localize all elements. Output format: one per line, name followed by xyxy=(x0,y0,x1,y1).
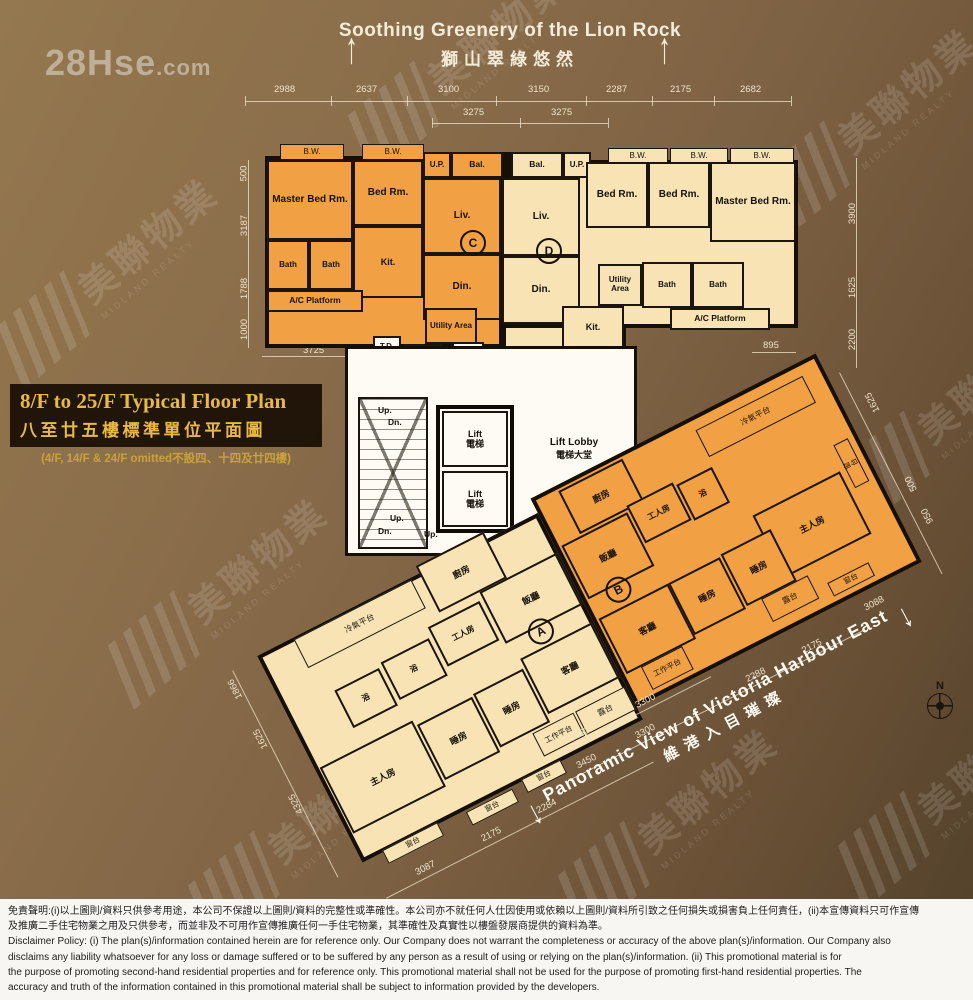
unit-c-bedroom: Bed Rm. xyxy=(353,160,423,226)
dim-tick xyxy=(608,118,609,128)
dim-tick xyxy=(520,118,521,128)
lift-lobby-label: Lift Lobby電梯大堂 xyxy=(536,437,612,461)
disclaimer-zh-line1: 免責聲明:(i)以上圖則/資料只供參考用途，本公司不保證以上圖則/資料的完整性或… xyxy=(8,904,965,919)
dim-tick xyxy=(652,96,653,106)
compass-north-label: N xyxy=(920,680,960,692)
unit-d-kitchen: Kit. xyxy=(562,306,624,348)
lift-1: Lift電梯 xyxy=(442,411,508,467)
unit-d-balcony: Bal. xyxy=(511,152,563,178)
dim-label: 500 xyxy=(903,474,920,493)
dim-label: 1625 xyxy=(847,277,858,298)
dim-tick xyxy=(586,96,587,106)
dim-label: 4325 xyxy=(286,792,305,816)
compass: N xyxy=(920,680,960,719)
dim-label: 2988 xyxy=(274,84,295,95)
dim-label: 2287 xyxy=(606,84,627,95)
dim-label: 3900 xyxy=(847,203,858,224)
unit-c-utility-platform: U.P. xyxy=(423,152,451,178)
dim-tick xyxy=(245,96,246,106)
disclaimer-en-line3: the purpose of promoting second-hand res… xyxy=(8,965,965,980)
unit-c-label: C xyxy=(460,230,486,256)
title-english: Soothing Greenery of the Lion Rock xyxy=(250,20,770,42)
dim-tick xyxy=(331,96,332,106)
unit-d-utility-area: Utility Area xyxy=(598,264,642,306)
dim-label: 2175 xyxy=(670,84,691,95)
unit-c-bathroom: Bath xyxy=(267,240,309,290)
disclaimer: 免責聲明:(i)以上圖則/資料只供參考用途，本公司不保證以上圖則/資料的完整性或… xyxy=(0,899,973,1000)
dim-label: 950 xyxy=(919,506,936,525)
omitted-floors-note: (4/F, 14/F & 24/F omitted不設四、十四及廿四樓) xyxy=(10,450,322,466)
compass-rose-icon xyxy=(927,693,953,719)
upper-wing-plan: B.W. B.W. U.P. Bal. Master Bed Rm. Bed R… xyxy=(240,140,820,380)
dim-tick xyxy=(496,96,497,106)
dim-label: 3275 xyxy=(463,107,484,118)
unit-d-bedroom: Bed Rm. xyxy=(648,162,710,228)
unit-d-bedroom: Bed Rm. xyxy=(586,162,648,228)
unit-d-bathroom: Bath xyxy=(642,262,692,308)
title-chinese: 獅山翠綠悠然 xyxy=(250,45,770,70)
stairs-down-label: Dn. xyxy=(378,526,392,536)
floor-plan-title-block: 8/F to 25/F Typical Floor Plan 八至廿五樓標準單位… xyxy=(10,384,322,466)
unit-c-ac-platform: A/C Platform xyxy=(267,290,363,312)
disclaimer-zh-line2: 及推廣二手住宅物業之用及只供參考，而並非及不可用作宣傳推廣任何一手住宅物業，其準… xyxy=(8,919,965,934)
stairs-down-label: Dn. xyxy=(388,417,402,427)
unit-c-balcony: Bal. xyxy=(451,152,503,178)
unit-d-bathroom: Bath xyxy=(692,262,744,308)
stairs-up-label: Up. xyxy=(390,513,404,523)
midland-watermark: 美聯物業MIDLAND REALTY xyxy=(0,163,234,383)
midland-logo-icon xyxy=(838,790,930,910)
dim-label: 2175 xyxy=(479,825,503,844)
unit-c-bay-window: B.W. xyxy=(280,144,344,160)
dim-label: 2200 xyxy=(847,329,858,350)
dim-label: 2637 xyxy=(356,84,377,95)
unit-d-master-bedroom: Master Bed Rm. xyxy=(710,162,796,242)
disclaimer-en-line4: accuracy and truth of the information co… xyxy=(8,980,965,995)
floor-range-title-chinese: 八至廿五樓標準單位平面圖 xyxy=(20,416,312,441)
dim-label: 3087 xyxy=(413,858,437,877)
midland-logo-icon xyxy=(0,270,90,390)
dim-label: 3100 xyxy=(438,84,459,95)
dim-label: 3150 xyxy=(528,84,549,95)
unit-c-bathroom: Bath xyxy=(309,240,353,290)
unit-c-master-bedroom: Master Bed Rm. xyxy=(267,160,353,240)
unit-c-kitchen: Kit. xyxy=(353,226,423,298)
dim-tick xyxy=(407,96,408,106)
floor-range-title: 8/F to 25/F Typical Floor Plan xyxy=(20,389,312,414)
dim-tick xyxy=(791,96,792,106)
unit-c-bay-window: B.W. xyxy=(362,144,424,160)
unit-c-utility-area: Utility Area xyxy=(425,308,477,344)
dim-tick xyxy=(432,118,433,128)
page-title: Soothing Greenery of the Lion Rock 獅山翠綠悠… xyxy=(250,20,770,70)
disclaimer-en-line2: disclaims any liability whatsoever for a… xyxy=(8,950,965,965)
28hse-watermark: 28Hse.com xyxy=(45,42,211,84)
stairs-up-label: Up. xyxy=(378,405,392,415)
dim-label: 2682 xyxy=(740,84,761,95)
disclaimer-en-line1: Disclaimer Policy: (i) The plan(s)/infor… xyxy=(8,934,965,949)
dimension-line xyxy=(245,101,791,102)
midland-logo-icon xyxy=(108,590,200,710)
unit-d-label: D xyxy=(536,238,562,264)
floor-plan-page: 美聯物業MIDLAND REALTY 美聯物業MIDLAND REALTY 美聯… xyxy=(0,0,973,1000)
unit-d-ac-platform: A/C Platform xyxy=(670,308,770,330)
dim-tick xyxy=(714,96,715,106)
dim-label: 3275 xyxy=(551,107,572,118)
dim-label: 1625 xyxy=(863,390,882,414)
